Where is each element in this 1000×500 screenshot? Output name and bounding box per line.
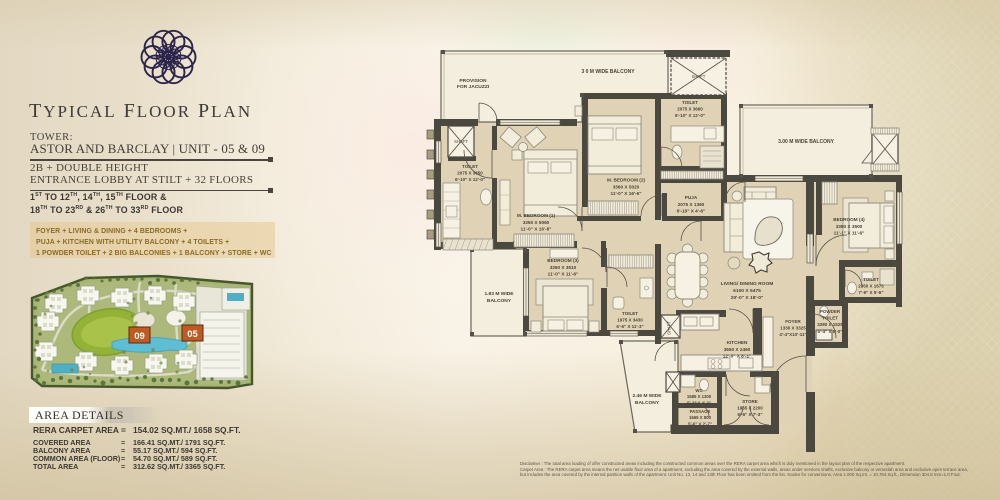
svg-text:BEDROOM (3)3350 X 351011'-0" X: BEDROOM (3)3350 X 351011'-0" X 11'-6" (547, 258, 579, 277)
svg-text:SHAFT: SHAFT (667, 321, 672, 335)
svg-text:PASSAGE1665 X 8005'-6" X 2'-7": PASSAGE1665 X 8005'-6" X 2'-7" (688, 409, 712, 426)
svg-text:3 0 M WIDE BALCONY: 3 0 M WIDE BALCONY (581, 69, 635, 75)
svg-text:SHAFT: SHAFT (454, 139, 468, 144)
svg-text:KITCHEN3650 X 246012'-0" X 8'-: KITCHEN3650 X 246012'-0" X 8'-1" (723, 340, 752, 359)
svg-text:SHAFT: SHAFT (692, 74, 706, 79)
svg-text:3.00 M WIDE BALCONY: 3.00 M WIDE BALCONY (778, 139, 835, 145)
svg-text:BEDROOM (4)3380 X 350011'-1" X: BEDROOM (4)3380 X 350011'-1" X 11'-6" (833, 217, 865, 236)
svg-text:POWDERTOILET3280 X 15255'-4" X: POWDERTOILET3280 X 15255'-4" X 5'-0" (817, 309, 843, 334)
